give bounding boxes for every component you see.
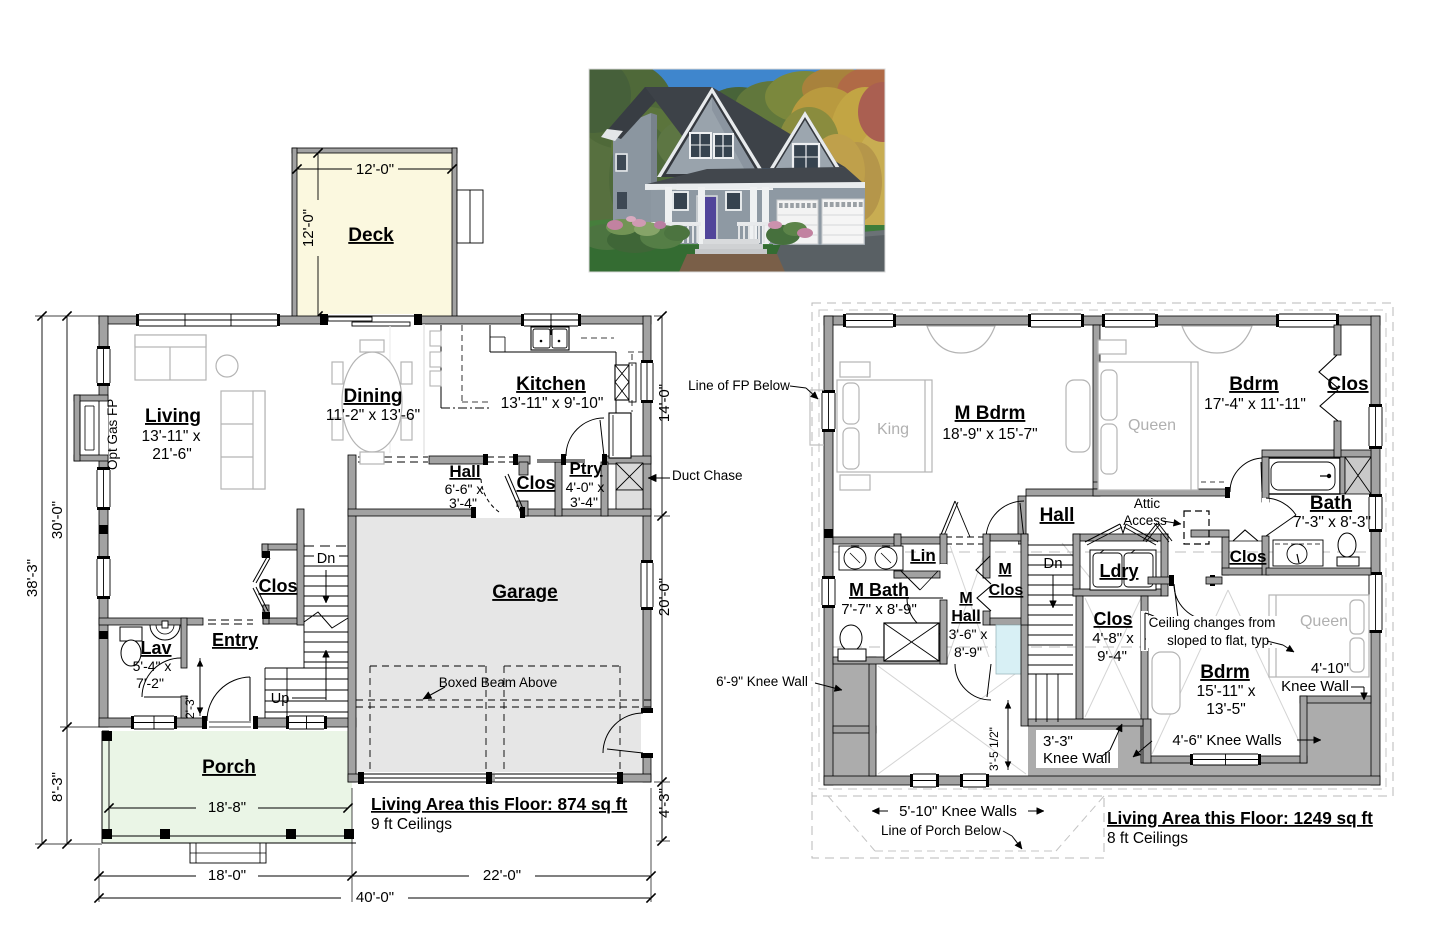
svg-text:15'-11" x: 15'-11" x [1196,683,1255,700]
svg-text:Lav: Lav [140,638,171,658]
svg-text:Living: Living [145,406,201,427]
svg-text:7'-3" x 8'-3": 7'-3" x 8'-3" [1293,514,1371,531]
svg-text:Queen: Queen [1128,417,1176,434]
svg-text:4'-6" Knee Walls: 4'-6" Knee Walls [1172,732,1281,749]
svg-text:14'-0": 14'-0" [656,384,673,422]
svg-text:Entry: Entry [212,630,258,650]
svg-text:3'-4": 3'-4" [570,494,598,510]
svg-text:M Bath: M Bath [849,580,909,600]
svg-text:Clos: Clos [258,576,297,596]
svg-text:11'-2" x 13'-6": 11'-2" x 13'-6" [326,407,420,424]
svg-text:Living Area this Floor: 874 sq: Living Area this Floor: 874 sq ft [371,794,628,814]
svg-text:M: M [959,590,972,607]
svg-text:9'-4": 9'-4" [1097,648,1127,665]
svg-text:Clos: Clos [989,582,1024,599]
svg-text:12'-0": 12'-0" [356,161,394,178]
svg-text:8'-9": 8'-9" [954,644,982,660]
svg-text:Bath: Bath [1310,493,1352,514]
svg-text:M: M [998,561,1011,578]
svg-text:Porch: Porch [202,757,256,778]
svg-text:6'-9" Knee Wall: 6'-9" Knee Wall [716,674,808,689]
svg-text:Clos: Clos [1093,609,1132,629]
svg-text:18'-0": 18'-0" [208,867,246,884]
svg-text:Knee Wall: Knee Wall [1281,678,1349,695]
svg-text:Clos: Clos [516,473,555,493]
svg-text:3'-6" x: 3'-6" x [949,626,988,642]
svg-text:30'-0": 30'-0" [49,501,66,539]
svg-text:Ldry: Ldry [1099,561,1138,581]
svg-text:5'-10" Knee Walls: 5'-10" Knee Walls [899,803,1017,820]
svg-text:18'-8": 18'-8" [208,799,246,816]
svg-text:21'-6": 21'-6" [152,446,191,463]
svg-text:Line of Porch Below: Line of Porch Below [881,823,1001,838]
svg-text:Deck: Deck [348,225,394,246]
svg-text:Living Area this Floor: 1249 s: Living Area this Floor: 1249 sq ft [1107,808,1373,828]
svg-text:7'-7" x 8'-9": 7'-7" x 8'-9" [841,601,917,618]
svg-text:4'-10": 4'-10" [1311,660,1349,677]
svg-text:2'-3": 2'-3" [183,695,197,719]
svg-text:Ptry: Ptry [569,459,603,478]
svg-text:Boxed Beam Above: Boxed Beam Above [439,675,558,690]
svg-text:Knee Wall: Knee Wall [1043,750,1111,767]
svg-text:8'-3": 8'-3" [49,772,66,802]
svg-text:8 ft Ceilings: 8 ft Ceilings [1107,830,1188,847]
svg-text:18'-9" x 15'-7": 18'-9" x 15'-7" [942,426,1037,443]
svg-text:Clos: Clos [1327,374,1368,395]
svg-text:Hall: Hall [449,462,480,481]
svg-text:Bdrm: Bdrm [1229,374,1279,395]
svg-text:13'-11" x: 13'-11" x [141,428,200,445]
svg-text:7'-2": 7'-2" [136,675,164,691]
svg-text:3'-3": 3'-3" [1043,733,1073,750]
svg-text:Dn: Dn [1043,555,1062,572]
svg-text:38'-3": 38'-3" [24,559,41,597]
svg-text:Line of FP Below: Line of FP Below [688,378,790,393]
svg-text:Dn: Dn [317,551,336,567]
svg-text:Hall: Hall [1040,505,1075,526]
svg-text:Duct Chase: Duct Chase [672,468,743,483]
svg-text:12'-0": 12'-0" [300,209,317,247]
svg-text:4'-8" x: 4'-8" x [1092,630,1134,647]
svg-text:Garage: Garage [492,582,557,603]
svg-text:Kitchen: Kitchen [516,374,586,395]
svg-text:17'-4" x 11'-11": 17'-4" x 11'-11" [1204,396,1306,413]
svg-text:5'-4" x: 5'-4" x [133,658,172,674]
svg-text:Bdrm: Bdrm [1200,662,1250,683]
svg-text:Lin: Lin [910,546,936,565]
svg-text:Hall: Hall [951,608,980,625]
svg-text:9 ft Ceilings: 9 ft Ceilings [371,816,452,833]
svg-text:20'-0": 20'-0" [656,578,673,616]
svg-text:sloped to flat, typ.: sloped to flat, typ. [1167,633,1273,648]
svg-text:4'-3": 4'-3" [656,788,673,818]
svg-text:Dining: Dining [343,386,402,407]
svg-text:Access: Access [1123,513,1167,528]
svg-text:4'-0" x: 4'-0" x [566,479,605,495]
svg-text:3'-4": 3'-4" [449,495,477,511]
svg-text:40'-0": 40'-0" [356,889,394,906]
svg-text:Up: Up [271,691,290,707]
svg-text:Attic: Attic [1134,496,1161,511]
svg-text:Queen: Queen [1300,613,1348,630]
svg-text:3'-5 1/2": 3'-5 1/2" [987,727,1001,771]
svg-text:King: King [877,421,909,438]
svg-text:22'-0": 22'-0" [483,867,521,884]
svg-text:Opt Gas FP: Opt Gas FP [105,399,120,470]
svg-text:Clos: Clos [1230,547,1267,566]
svg-text:M Bdrm: M Bdrm [955,403,1026,424]
svg-text:Ceiling changes from: Ceiling changes from [1149,615,1276,630]
svg-text:13'-11" x 9'-10": 13'-11" x 9'-10" [501,395,604,412]
svg-text:13'-5": 13'-5" [1206,701,1245,718]
